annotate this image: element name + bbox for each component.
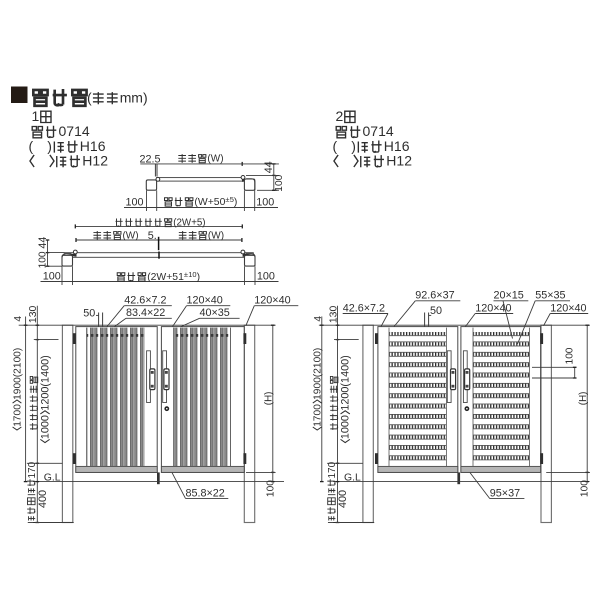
svg-text:0: 0 <box>138 196 144 208</box>
svg-text:5: 5 <box>518 290 524 302</box>
svg-text:m: m <box>120 90 132 106</box>
svg-text:0: 0 <box>363 123 371 139</box>
svg-text:0: 0 <box>39 415 51 421</box>
svg-text:): ) <box>220 154 223 165</box>
svg-text:2: 2 <box>219 487 225 499</box>
svg-text:0: 0 <box>337 490 349 496</box>
svg-text:H: H <box>82 153 92 169</box>
svg-text:1: 1 <box>378 123 386 139</box>
svg-text:): ) <box>12 348 23 351</box>
svg-text:): ) <box>340 355 352 359</box>
svg-text:1: 1 <box>394 138 402 154</box>
svg-text:0: 0 <box>37 490 49 496</box>
svg-text:1: 1 <box>32 108 40 124</box>
svg-text:0: 0 <box>274 174 285 180</box>
svg-text:0: 0 <box>581 302 587 314</box>
svg-text:4: 4 <box>263 161 275 167</box>
svg-text:4: 4 <box>13 316 24 322</box>
svg-text:5: 5 <box>224 307 230 319</box>
svg-text:0: 0 <box>265 480 276 486</box>
svg-text:): ) <box>143 90 148 106</box>
svg-text:4: 4 <box>313 316 324 322</box>
svg-text:W: W <box>156 272 166 283</box>
svg-text:6: 6 <box>402 138 410 154</box>
svg-text:.: . <box>154 230 157 242</box>
svg-text:G: G <box>44 472 52 483</box>
svg-text:(: ( <box>87 90 92 106</box>
svg-text:): ) <box>197 272 200 283</box>
svg-text:0: 0 <box>28 306 39 312</box>
svg-text:): ) <box>312 348 323 351</box>
svg-text:): ) <box>234 197 237 208</box>
svg-text:1: 1 <box>396 153 404 169</box>
svg-text:2: 2 <box>379 302 385 314</box>
svg-text:7: 7 <box>449 290 455 302</box>
svg-text:0: 0 <box>565 347 576 353</box>
svg-text:1: 1 <box>74 123 82 139</box>
svg-text:0: 0 <box>328 306 339 312</box>
svg-text:0: 0 <box>55 270 61 282</box>
svg-text:1: 1 <box>90 138 98 154</box>
svg-text:G: G <box>344 472 352 483</box>
svg-text:0: 0 <box>217 295 223 307</box>
svg-text:(: ( <box>29 138 34 154</box>
svg-text:H: H <box>384 138 394 154</box>
svg-text:0: 0 <box>89 307 95 319</box>
svg-text:1: 1 <box>92 153 100 169</box>
svg-text:(: ( <box>333 138 338 154</box>
svg-text:): ) <box>264 392 275 395</box>
svg-text:0: 0 <box>285 295 291 307</box>
svg-text:0: 0 <box>580 480 591 486</box>
svg-text:0: 0 <box>268 196 274 208</box>
svg-text:): ) <box>39 355 51 359</box>
svg-text:0: 0 <box>312 404 323 410</box>
svg-text:): ) <box>578 392 589 395</box>
svg-text:2: 2 <box>100 153 108 169</box>
svg-text:0: 0 <box>269 270 275 282</box>
svg-text:H: H <box>386 153 396 169</box>
svg-text:): ) <box>202 218 205 229</box>
svg-text:0: 0 <box>327 461 338 467</box>
svg-text:L: L <box>55 472 61 483</box>
svg-text:2: 2 <box>404 153 412 169</box>
svg-text:7: 7 <box>514 488 520 500</box>
svg-text:5: 5 <box>560 290 566 302</box>
svg-text:6: 6 <box>98 138 106 154</box>
svg-text:0: 0 <box>38 251 49 257</box>
svg-text:0: 0 <box>12 404 23 410</box>
svg-text:7: 7 <box>370 123 378 139</box>
svg-text:0: 0 <box>506 302 512 314</box>
svg-text:2: 2 <box>336 108 344 124</box>
svg-text:): ) <box>135 231 138 242</box>
svg-text:0: 0 <box>436 305 442 317</box>
svg-text:0: 0 <box>27 461 38 467</box>
svg-text:): ) <box>221 231 224 242</box>
svg-text:H: H <box>80 138 90 154</box>
svg-text:2: 2 <box>159 307 165 319</box>
svg-text:): ) <box>351 138 356 154</box>
svg-text:W: W <box>198 197 208 208</box>
svg-text:2: 2 <box>161 295 167 307</box>
svg-text:m: m <box>131 90 143 106</box>
svg-text:4: 4 <box>82 123 90 139</box>
svg-text:4: 4 <box>37 237 49 243</box>
svg-text:): ) <box>47 138 52 154</box>
svg-text:4: 4 <box>386 123 394 139</box>
svg-text:0: 0 <box>340 415 352 421</box>
svg-text:5: 5 <box>155 153 161 165</box>
svg-text:0: 0 <box>59 123 67 139</box>
svg-text:L: L <box>355 472 361 483</box>
svg-text:7: 7 <box>66 123 74 139</box>
